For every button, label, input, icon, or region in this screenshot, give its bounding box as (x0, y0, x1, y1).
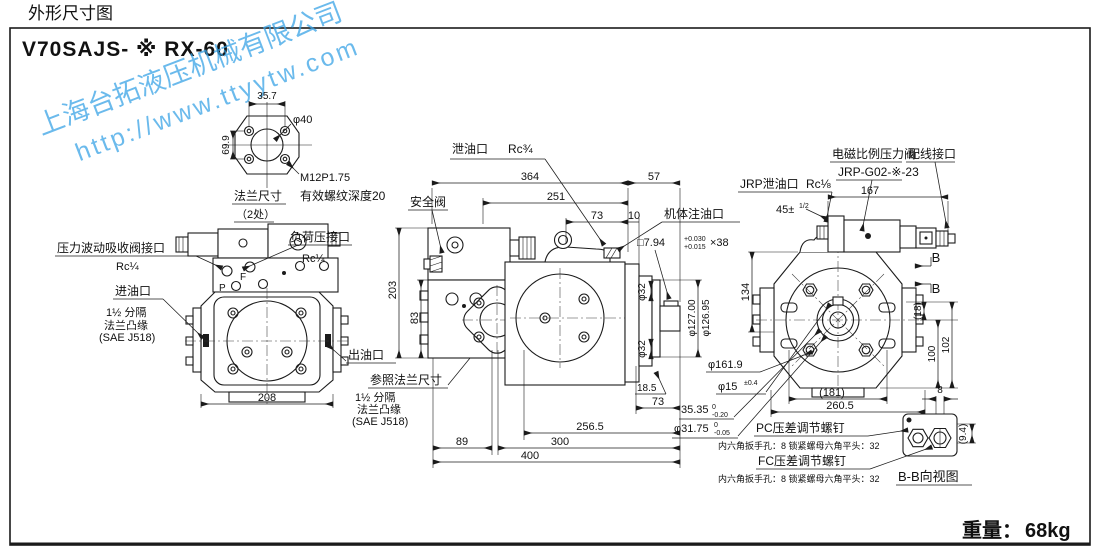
bb-view-drawing (903, 414, 957, 456)
flange-name-label: 法兰尺寸 (234, 189, 282, 203)
thread-depth-note: 有效螺纹深度20 (300, 188, 386, 203)
dim-phi40: φ40 (293, 114, 312, 126)
dim-phi126: φ126.95 (701, 299, 712, 337)
ref-sub3: (SAE J518) (352, 416, 408, 428)
port-letter-p: P (219, 283, 226, 294)
front-view-drawing (176, 224, 350, 404)
dim-phi32-bottom: φ32 (637, 340, 648, 358)
inlet-label: 进油口 (115, 284, 151, 298)
dim-18-paren: (18) (913, 302, 924, 320)
dim-8: 8 (937, 385, 943, 396)
fc-screw-label: FC压差调节螺钉 (758, 454, 846, 468)
watermark: 上海台拓液压机械有限公司 http://www.ttyytw.com (33, 0, 364, 176)
dim-167: 167 (861, 185, 879, 197)
thread-spec: M12P1.75 (300, 172, 350, 184)
dim-35-35-tol-upper: 0 (712, 404, 716, 411)
pc-screw-label: PC压差调节螺钉 (756, 421, 845, 435)
side-view-drawing (420, 228, 680, 385)
key-tolerance-upper: +0.030 (684, 236, 706, 243)
drain-port-rc: Rc¾ (508, 142, 534, 156)
proportional-valve-label: 电磁比例压力阀 (832, 146, 916, 161)
inlet-sub1: 1½ 分隔 (106, 306, 146, 319)
dim-73-bottom: 73 (652, 396, 664, 408)
dim-181: (181) (819, 387, 845, 399)
dim-35-35: 35.35 (681, 404, 709, 416)
wiring-port-label: 配线接口 (908, 146, 956, 161)
weight-label: 重量： (962, 519, 1022, 542)
safety-valve-label: 安全阀 (410, 194, 446, 209)
dim-45deg-tol: 1/2 (799, 203, 809, 210)
dim-83: 83 (409, 312, 421, 324)
pc-screw-note: 内六角扳手孔：8 锁紧螺母六角平头：32 (718, 440, 880, 451)
ref-sub2: 法兰凸缘 (357, 402, 401, 416)
dim-203: 203 (387, 281, 399, 299)
bb-view-title: B-B向视图 (898, 469, 959, 484)
flange-places-label: （2处） (236, 208, 275, 221)
fill-port-label: 机体注油口 (664, 206, 724, 221)
key-tolerance-lower: +0.015 (684, 244, 706, 251)
drain-port-label: 泄油口 (452, 142, 488, 156)
dim-400: 400 (521, 450, 539, 462)
dim-260-5: 260.5 (826, 400, 854, 412)
dim-251: 251 (547, 191, 565, 203)
rear-view-drawing (753, 216, 955, 398)
dim-134: 134 (740, 283, 752, 301)
outlet-label: 出油口 (348, 348, 384, 362)
dim-73-top: 73 (591, 210, 603, 222)
dim-phi15-tol: ±0.4 (744, 380, 758, 387)
dim-phi31-75: φ31.75 (674, 423, 709, 435)
dim-35-35-tol-lower: -0.20 (712, 412, 728, 419)
inlet-sub2: 法兰凸缘 (104, 318, 148, 332)
jrp-drain-rc: Rc⅛ (806, 177, 832, 191)
fc-screw-note: 内六角扳手孔：8 锁紧螺母六角平头：32 (718, 473, 880, 484)
surge-port-rc: Rc¼ (116, 261, 139, 273)
dim-10: 10 (628, 210, 640, 222)
section-marker-b2: B (932, 281, 941, 296)
dim-45deg: 45± (776, 204, 794, 216)
dim-57: 57 (648, 171, 660, 183)
dim-256-5: 256.5 (576, 421, 604, 433)
dim-35-7: 35.7 (257, 91, 277, 102)
ref-sub1: 1½ 分隔 (355, 391, 395, 404)
dim-100: 100 (927, 345, 938, 362)
dim-208: 208 (258, 392, 276, 404)
key-length: ×38 (710, 237, 729, 249)
jrp-drain-label: JRP泄油口 (740, 177, 799, 191)
dim-phi127: φ127.00 (687, 299, 698, 337)
weight-value: 68kg (1025, 520, 1071, 542)
weight-note: 重量： 68kg (962, 519, 1071, 542)
dim-102: 102 (941, 336, 952, 353)
dim-phi161-9: φ161.9 (708, 359, 743, 371)
inlet-sub3: (SAE J518) (99, 332, 155, 344)
key-spec: □7.94 (637, 237, 665, 249)
surge-port-label: 压力波动吸收阀接口 (57, 240, 165, 255)
dim-364: 364 (521, 171, 539, 183)
dim-phi15: φ15 (718, 381, 737, 393)
dim-phi31-75-tol-upper: 0 (714, 422, 718, 429)
dim-18-5: 18.5 (637, 383, 657, 394)
dim-phi32-top: φ32 (637, 283, 648, 301)
dim-9-4: (9.4) (958, 424, 969, 445)
ref-flange-label: 参照法兰尺寸 (370, 372, 442, 387)
load-port-rc: Rc¼ (302, 253, 325, 265)
dim-89: 89 (456, 436, 468, 448)
page-title: 外形尺寸图 (28, 4, 113, 23)
drawing-page: 外形尺寸图 V70SAJS- ※ RX-60 上海台拓液压机械有限公司 http… (0, 0, 1100, 554)
dim-300: 300 (551, 436, 569, 448)
dim-69-9: 69.9 (221, 135, 232, 155)
load-port-label: 负荷压接口 (290, 229, 350, 244)
port-letter-f: F (240, 272, 246, 283)
section-marker-b1: B (932, 250, 941, 265)
proportional-valve-model: JRP-G02-※-23 (838, 165, 919, 179)
dim-phi31-75-tol-lower: -0.05 (714, 430, 730, 437)
